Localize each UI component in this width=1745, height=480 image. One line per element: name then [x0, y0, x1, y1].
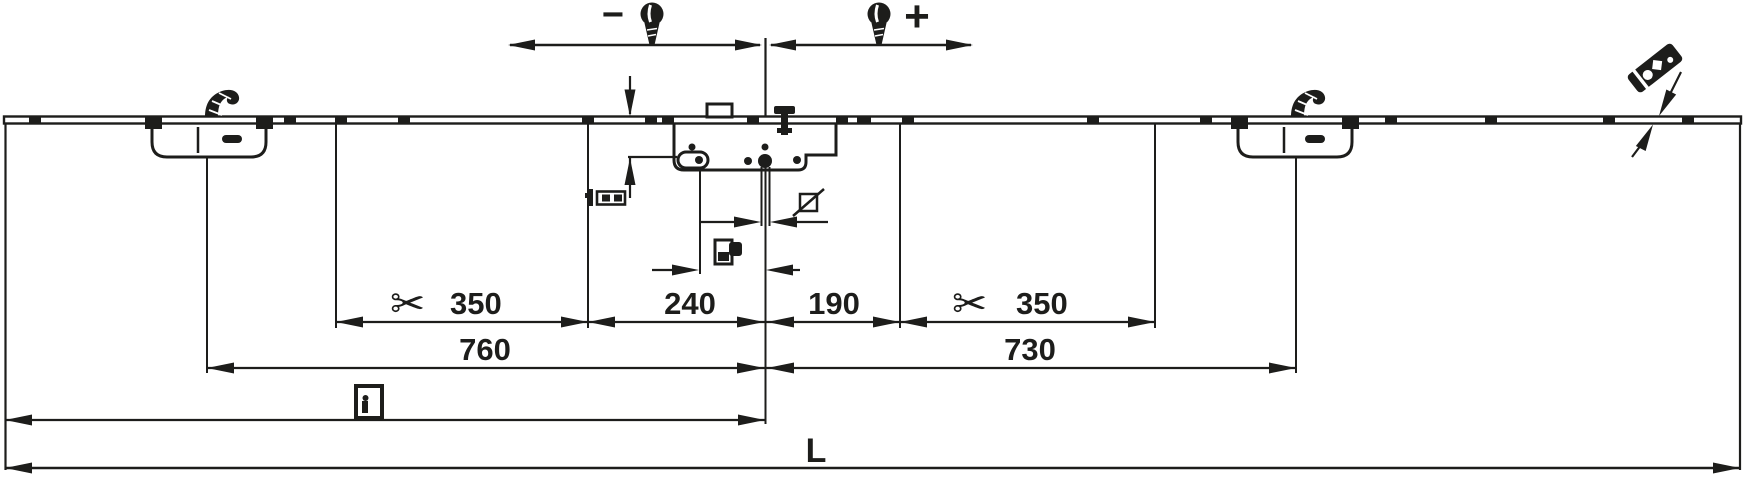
- follower-icon: [715, 240, 742, 264]
- faceplate-section-indicator: [1626, 41, 1685, 157]
- dim-total-length: L: [806, 432, 827, 470]
- dim-190: 190: [808, 286, 860, 321]
- minus-label: −: [602, 0, 624, 36]
- faceplate-screw-slots: [29, 118, 1694, 123]
- axis-height-dimension: [585, 76, 677, 206]
- dimension-row-spans: 760 730: [207, 157, 1296, 374]
- dim-240: 240: [664, 286, 716, 321]
- door-icon: [356, 386, 382, 418]
- square-section-icon: [793, 189, 824, 216]
- plus-label: +: [904, 0, 930, 41]
- espagnolette-dimension-drawing: − +: [0, 0, 1745, 480]
- gearbox-top-cam: [774, 106, 795, 135]
- handle-slot: [678, 152, 708, 168]
- profile-icon: [585, 189, 625, 206]
- spindle-square-dimension: [700, 189, 828, 228]
- spindle-rod: [762, 167, 770, 226]
- dimension-row-total-length: L: [5, 432, 1740, 474]
- scissors-icon: ✂: [952, 279, 987, 328]
- mushroom-cam-icon: [205, 90, 239, 117]
- dimension-row-cut-lengths: ✂ 350 240 190 ✂ 350: [336, 123, 1155, 328]
- dim-760: 760: [459, 332, 511, 367]
- scissors-icon: ✂: [390, 279, 425, 328]
- spindle-hub: [758, 154, 772, 168]
- dim-730: 730: [1004, 332, 1056, 367]
- dim-350-left: 350: [450, 286, 502, 321]
- screw-icon: [868, 3, 891, 46]
- gearbox-top-tab: [707, 104, 732, 117]
- adjustment-indicator: − +: [508, 0, 973, 116]
- mushroom-cam-icon: [1291, 90, 1325, 117]
- frame-extension-lines: [6, 123, 1741, 470]
- section-plate-icon: [1626, 41, 1685, 94]
- dimension-row-handle-position: [5, 386, 765, 426]
- screw-icon: [641, 3, 664, 46]
- dim-350-right: 350: [1016, 286, 1068, 321]
